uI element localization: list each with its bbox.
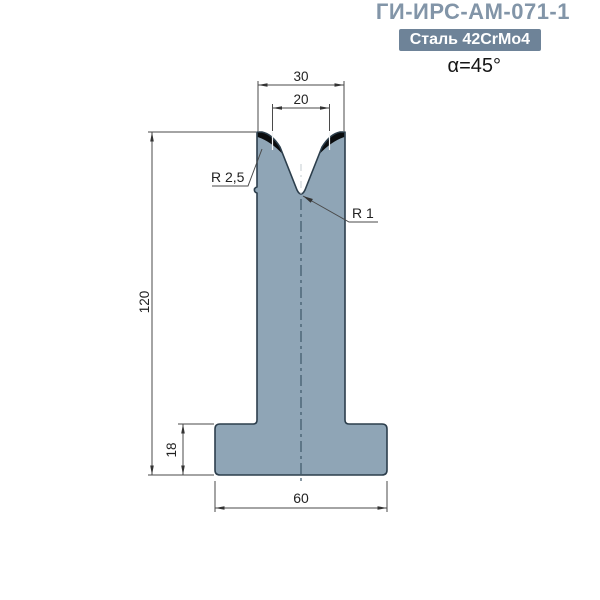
dim-text-20: 20 <box>293 92 308 107</box>
dim-text-120: 120 <box>137 291 152 314</box>
die-drawing: 30 20 120 18 60 R 2,5 R 1 <box>0 0 600 600</box>
label-shoulder-radius: R 2,5 <box>211 169 245 185</box>
dim-text-18: 18 <box>164 442 179 457</box>
label-tip-radius: R 1 <box>352 205 374 221</box>
drawing-sheet: ГИ-ИРС-АМ-071-1 Сталь 42CrMo4 α=45° 30 <box>0 0 600 600</box>
dim-text-60: 60 <box>293 490 309 506</box>
dim-text-30: 30 <box>293 69 308 84</box>
